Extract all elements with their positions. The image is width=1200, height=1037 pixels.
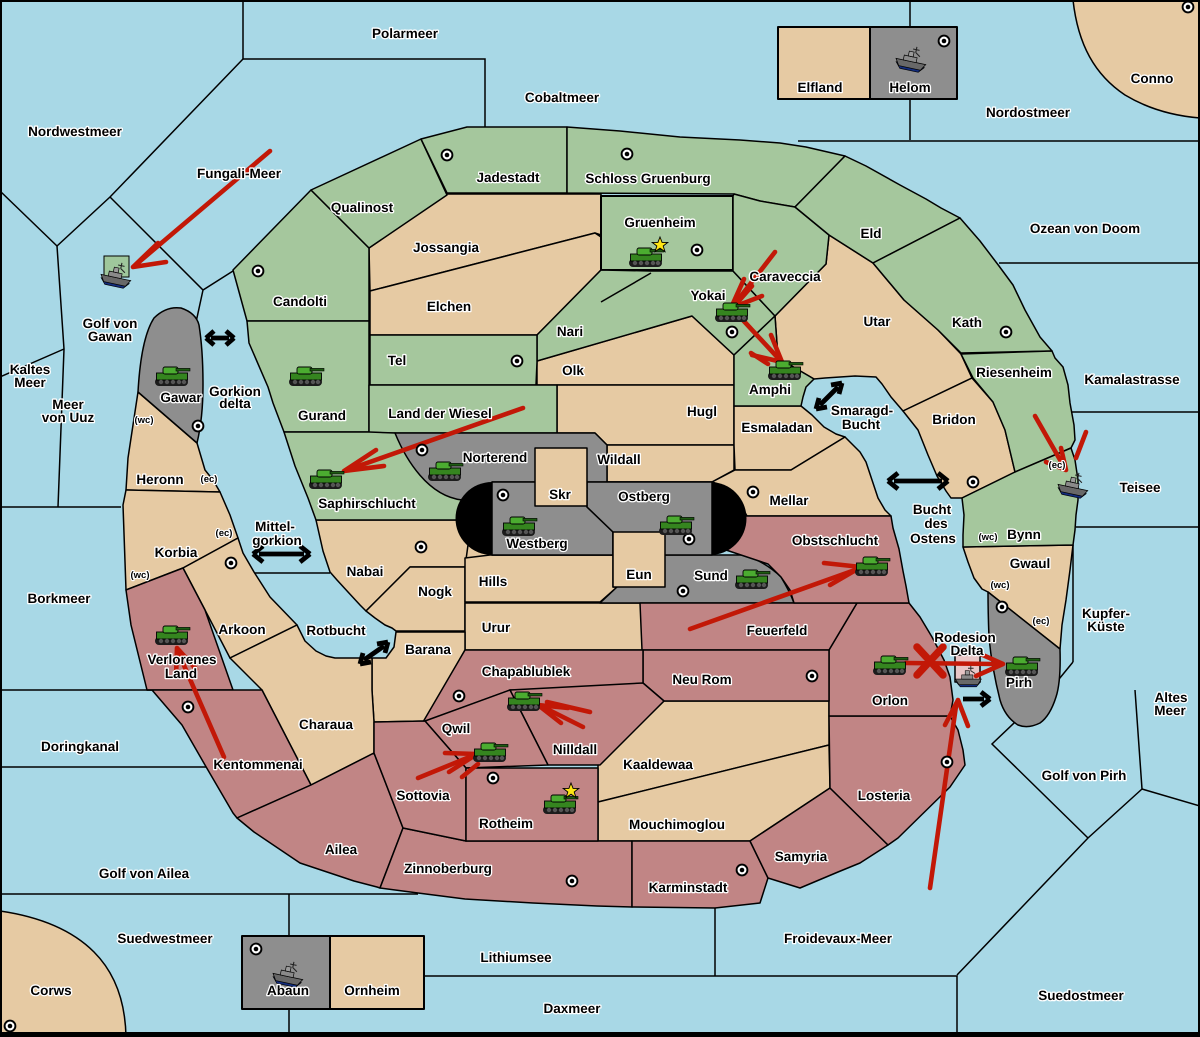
svg-text:Froidevaux-Meer: Froidevaux-Meer [784, 931, 893, 946]
svg-text:Nabai: Nabai [347, 564, 384, 579]
svg-text:Ozean von Doom: Ozean von Doom [1030, 221, 1140, 236]
svg-text:Küste: Küste [1087, 619, 1125, 634]
svg-text:Mittel-: Mittel- [255, 519, 295, 534]
svg-text:Nilldall: Nilldall [553, 742, 597, 757]
svg-text:Doringkanal: Doringkanal [41, 739, 119, 754]
svg-text:Hills: Hills [479, 574, 508, 589]
svg-text:Utar: Utar [863, 314, 891, 329]
svg-text:Sund: Sund [694, 568, 728, 583]
svg-text:Eun: Eun [626, 567, 652, 582]
svg-text:Helom: Helom [889, 80, 930, 95]
svg-text:Daxmeer: Daxmeer [543, 1001, 601, 1016]
svg-text:Jadestadt: Jadestadt [476, 170, 540, 185]
svg-text:Sottovia: Sottovia [396, 788, 450, 803]
svg-text:Feuerfeld: Feuerfeld [747, 623, 808, 638]
svg-text:Polarmeer: Polarmeer [372, 26, 439, 41]
svg-text:(ec): (ec) [216, 528, 233, 539]
svg-text:Verlorenes: Verlorenes [147, 652, 216, 667]
svg-text:Losteria: Losteria [858, 788, 911, 803]
svg-text:Yokai: Yokai [690, 288, 725, 303]
svg-text:Urur: Urur [482, 620, 511, 635]
svg-text:Nogk: Nogk [418, 584, 452, 599]
svg-text:Qwil: Qwil [442, 721, 471, 736]
svg-text:Teisee: Teisee [1119, 480, 1161, 495]
svg-text:Jossangia: Jossangia [413, 240, 480, 255]
svg-text:(wc): (wc) [135, 415, 154, 426]
svg-text:Heronn: Heronn [136, 472, 183, 487]
svg-text:Corws: Corws [30, 983, 71, 998]
svg-text:Bridon: Bridon [932, 412, 976, 427]
svg-text:(wc): (wc) [979, 532, 998, 543]
svg-text:Lithiumsee: Lithiumsee [480, 950, 552, 965]
svg-text:Meer: Meer [1154, 703, 1186, 718]
svg-text:Samyria: Samyria [775, 849, 828, 864]
svg-text:Gruenheim: Gruenheim [624, 215, 695, 230]
svg-text:Riesenheim: Riesenheim [976, 365, 1052, 380]
svg-text:Land der Wiesel: Land der Wiesel [388, 406, 491, 421]
svg-text:Pirh: Pirh [1006, 675, 1032, 690]
svg-text:Westberg: Westberg [506, 536, 567, 551]
svg-text:Neu Rom: Neu Rom [672, 672, 731, 687]
svg-text:Zinnoberburg: Zinnoberburg [404, 861, 492, 876]
svg-text:Rotheim: Rotheim [479, 816, 533, 831]
svg-text:Cobaltmeer: Cobaltmeer [525, 90, 600, 105]
svg-text:Qualinost: Qualinost [331, 200, 394, 215]
svg-text:von Uuz: von Uuz [42, 410, 95, 425]
svg-text:Esmaladan: Esmaladan [741, 420, 812, 435]
svg-text:Chapablublek: Chapablublek [482, 664, 571, 679]
svg-text:Kath: Kath [952, 315, 982, 330]
svg-text:(ec): (ec) [1049, 460, 1066, 471]
svg-text:Orlon: Orlon [872, 693, 908, 708]
svg-text:Suedwestmeer: Suedwestmeer [117, 931, 213, 946]
svg-text:Kaaldewaa: Kaaldewaa [623, 757, 693, 772]
svg-text:Caraveccia: Caraveccia [749, 269, 821, 284]
svg-text:Borkmeer: Borkmeer [27, 591, 91, 606]
svg-text:Suedostmeer: Suedostmeer [1038, 988, 1124, 1003]
svg-text:des: des [924, 516, 947, 531]
svg-text:Abaun: Abaun [267, 983, 309, 998]
svg-text:Ostens: Ostens [910, 531, 956, 546]
svg-text:Gwaul: Gwaul [1010, 556, 1051, 571]
svg-text:Wildall: Wildall [597, 452, 640, 467]
svg-text:Amphi: Amphi [749, 382, 791, 397]
svg-text:delta: delta [219, 396, 251, 411]
svg-text:Ailea: Ailea [325, 842, 358, 857]
svg-text:Candolti: Candolti [273, 294, 327, 309]
svg-text:gorkion: gorkion [252, 533, 302, 548]
svg-text:Bucht: Bucht [842, 417, 881, 432]
svg-text:Smaragd-: Smaragd- [831, 403, 893, 418]
svg-text:Nordwestmeer: Nordwestmeer [28, 124, 123, 139]
svg-text:(wc): (wc) [991, 580, 1010, 591]
svg-text:Karminstadt: Karminstadt [649, 880, 728, 895]
svg-text:Ostberg: Ostberg [618, 489, 670, 504]
svg-text:Gurand: Gurand [298, 408, 346, 423]
svg-text:Kentommenai: Kentommenai [213, 757, 302, 772]
svg-text:Charaua: Charaua [299, 717, 354, 732]
svg-text:Skr: Skr [549, 487, 572, 502]
svg-text:Elchen: Elchen [427, 299, 471, 314]
svg-text:Gawar: Gawar [160, 390, 202, 405]
svg-text:Rotbucht: Rotbucht [306, 623, 366, 638]
svg-text:(wc): (wc) [131, 570, 150, 581]
svg-text:Olk: Olk [562, 363, 584, 378]
svg-text:Nari: Nari [557, 324, 583, 339]
svg-text:Meer: Meer [14, 375, 46, 390]
svg-text:Golf von Pirh: Golf von Pirh [1042, 768, 1127, 783]
svg-text:Saphirschlucht: Saphirschlucht [318, 496, 416, 511]
svg-text:Schloss Gruenburg: Schloss Gruenburg [585, 171, 710, 186]
svg-text:Delta: Delta [950, 643, 984, 658]
svg-text:Arkoon: Arkoon [218, 622, 265, 637]
svg-text:Elfland: Elfland [797, 80, 842, 95]
svg-text:Barana: Barana [405, 642, 451, 657]
svg-text:Kamalastrasse: Kamalastrasse [1084, 372, 1180, 387]
svg-text:Tel: Tel [388, 353, 407, 368]
svg-text:Fungali-Meer: Fungali-Meer [197, 166, 282, 181]
svg-text:(ec): (ec) [1033, 616, 1050, 627]
svg-text:Bucht: Bucht [913, 502, 952, 517]
svg-text:Norterend: Norterend [463, 450, 528, 465]
svg-text:Mellar: Mellar [769, 493, 809, 508]
svg-text:Nordostmeer: Nordostmeer [986, 105, 1071, 120]
svg-text:Korbia: Korbia [155, 545, 198, 560]
svg-text:Mouchimoglou: Mouchimoglou [629, 817, 725, 832]
svg-text:Hugl: Hugl [687, 404, 717, 419]
svg-text:Conno: Conno [1131, 71, 1174, 86]
svg-text:Gawan: Gawan [88, 329, 132, 344]
svg-text:Bynn: Bynn [1007, 527, 1041, 542]
svg-text:(ec): (ec) [201, 474, 218, 485]
svg-text:Ornheim: Ornheim [344, 983, 400, 998]
svg-text:Obstschlucht: Obstschlucht [792, 533, 879, 548]
svg-text:Land: Land [165, 666, 197, 681]
svg-text:Golf von Ailea: Golf von Ailea [99, 866, 190, 881]
svg-text:Eld: Eld [860, 226, 881, 241]
